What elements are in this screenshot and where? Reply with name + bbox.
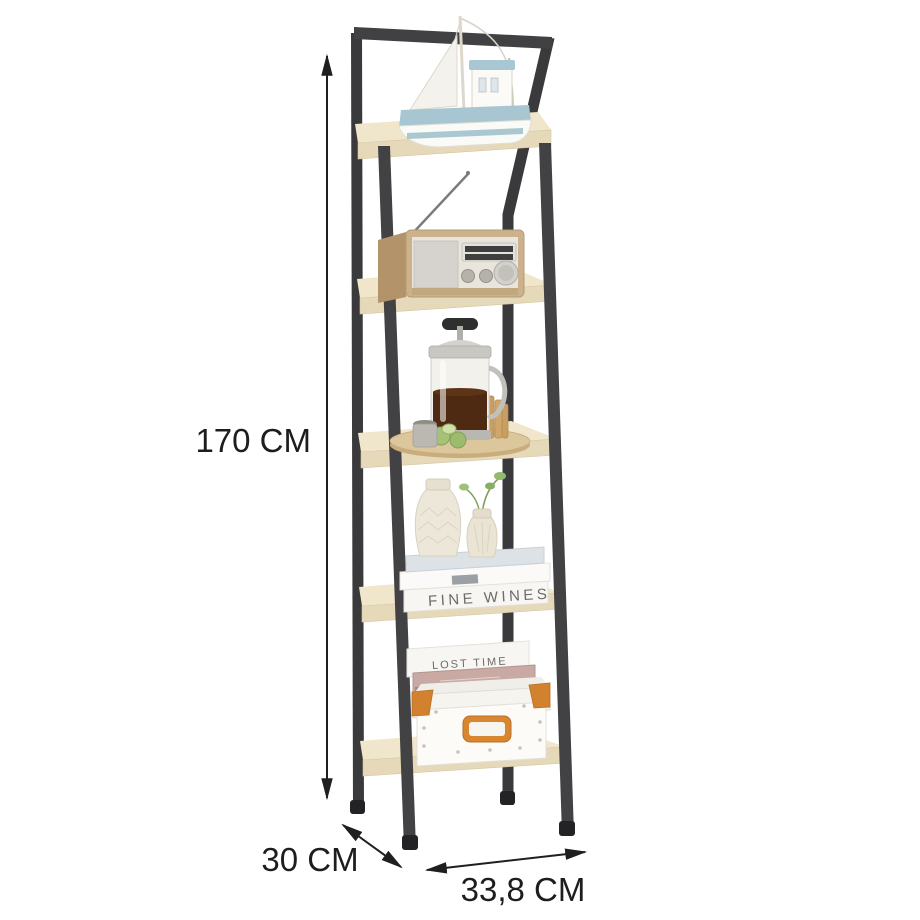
radio-antenna (412, 174, 468, 234)
foot-cap (350, 800, 365, 814)
width-arrow (427, 852, 585, 870)
label-card (469, 722, 505, 736)
radio-knob (480, 270, 493, 283)
leaf (485, 483, 495, 490)
ladder-shelf-diagram: FINE WINES LOST TIME (0, 0, 920, 920)
depth-dimension-label: 30 CM (261, 841, 358, 878)
leaf (459, 484, 469, 491)
foot-cap (402, 835, 418, 850)
height-dimension-label: 170 CM (195, 422, 311, 459)
vintage-radio (378, 171, 524, 303)
leaf (494, 472, 506, 480)
small-vase-with-sprig (459, 472, 506, 557)
lime (450, 432, 466, 448)
radio-knob (462, 270, 475, 283)
book-stack-vases: FINE WINES (400, 472, 551, 612)
foot-cap (559, 821, 575, 836)
sail (410, 36, 457, 110)
large-vase (415, 479, 460, 556)
lime-half (442, 424, 456, 434)
mast (460, 16, 464, 112)
radio-grille (414, 241, 458, 288)
product-dimension-image: FINE WINES LOST TIME (0, 0, 920, 920)
small-jar (413, 424, 437, 447)
width-dimension-label: 33,8 CM (461, 871, 586, 908)
foot-cap (500, 791, 515, 805)
corner-guard (412, 690, 433, 716)
storage-box-books: LOST TIME (407, 641, 550, 766)
